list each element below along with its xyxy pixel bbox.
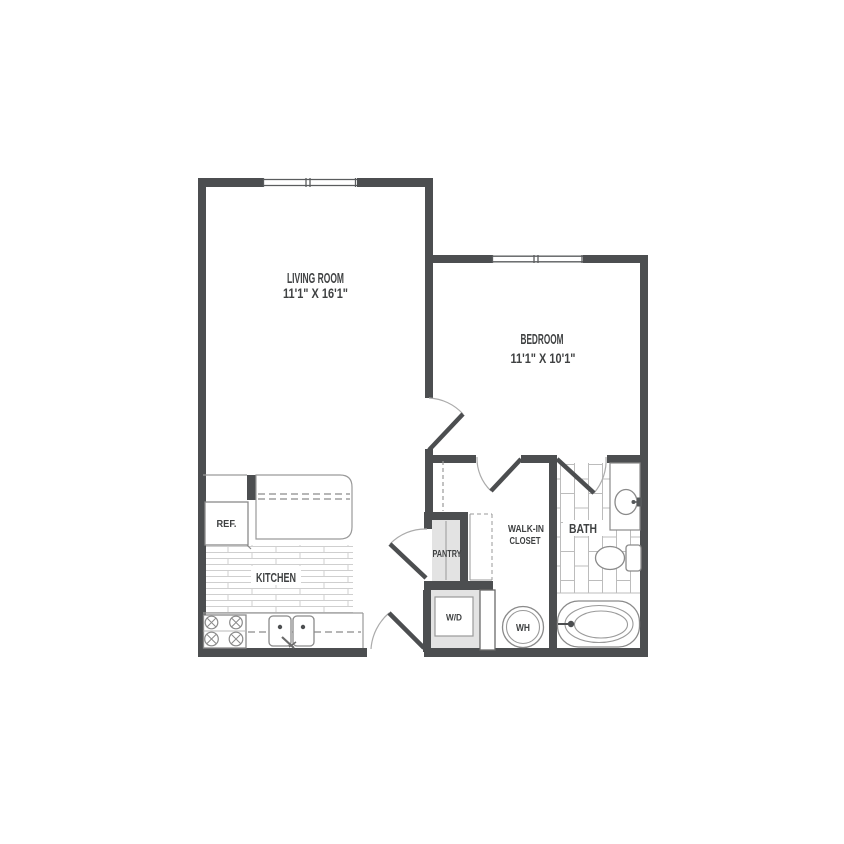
closet-door xyxy=(477,457,521,491)
walk-in-closet-label-line2: CLOSET xyxy=(510,535,541,547)
bedroom-label: BEDROOM xyxy=(521,332,564,348)
washer-dryer-label: W/D xyxy=(446,613,462,624)
water-heater-label: WH xyxy=(516,623,530,634)
kitchen-label: KITCHEN xyxy=(256,570,296,585)
bath-label: BATH xyxy=(569,521,597,536)
kitchen-sink-icon xyxy=(269,616,314,648)
living-room-window xyxy=(263,178,357,187)
toilet-icon xyxy=(596,545,642,571)
bedroom-dimensions: 11'1" X 10'1" xyxy=(511,351,576,366)
refrigerator-label: REF. xyxy=(217,519,237,530)
pantry-label: PANTRY xyxy=(433,548,462,560)
living-room-label: LIVING ROOM xyxy=(287,271,344,287)
ref-nook-wall xyxy=(247,475,256,500)
walk-in-closet-label-line1: WALK-IN xyxy=(508,523,544,535)
stove-icon xyxy=(204,615,247,648)
bathtub-icon xyxy=(558,601,640,647)
floor-plan-drawing: LIVING ROOM 11'1" X 16'1" BEDROOM 11'1" … xyxy=(0,0,844,844)
closet-shelf xyxy=(470,514,492,580)
peninsula-counter xyxy=(256,475,352,539)
bedroom-door xyxy=(429,398,463,450)
living-room-dimensions: 11'1" X 16'1" xyxy=(283,286,348,301)
bedroom-window xyxy=(492,255,583,263)
pantry-door xyxy=(390,529,427,578)
floor-plan: LIVING ROOM 11'1" X 16'1" BEDROOM 11'1" … xyxy=(0,0,844,844)
entry-door xyxy=(371,613,424,649)
